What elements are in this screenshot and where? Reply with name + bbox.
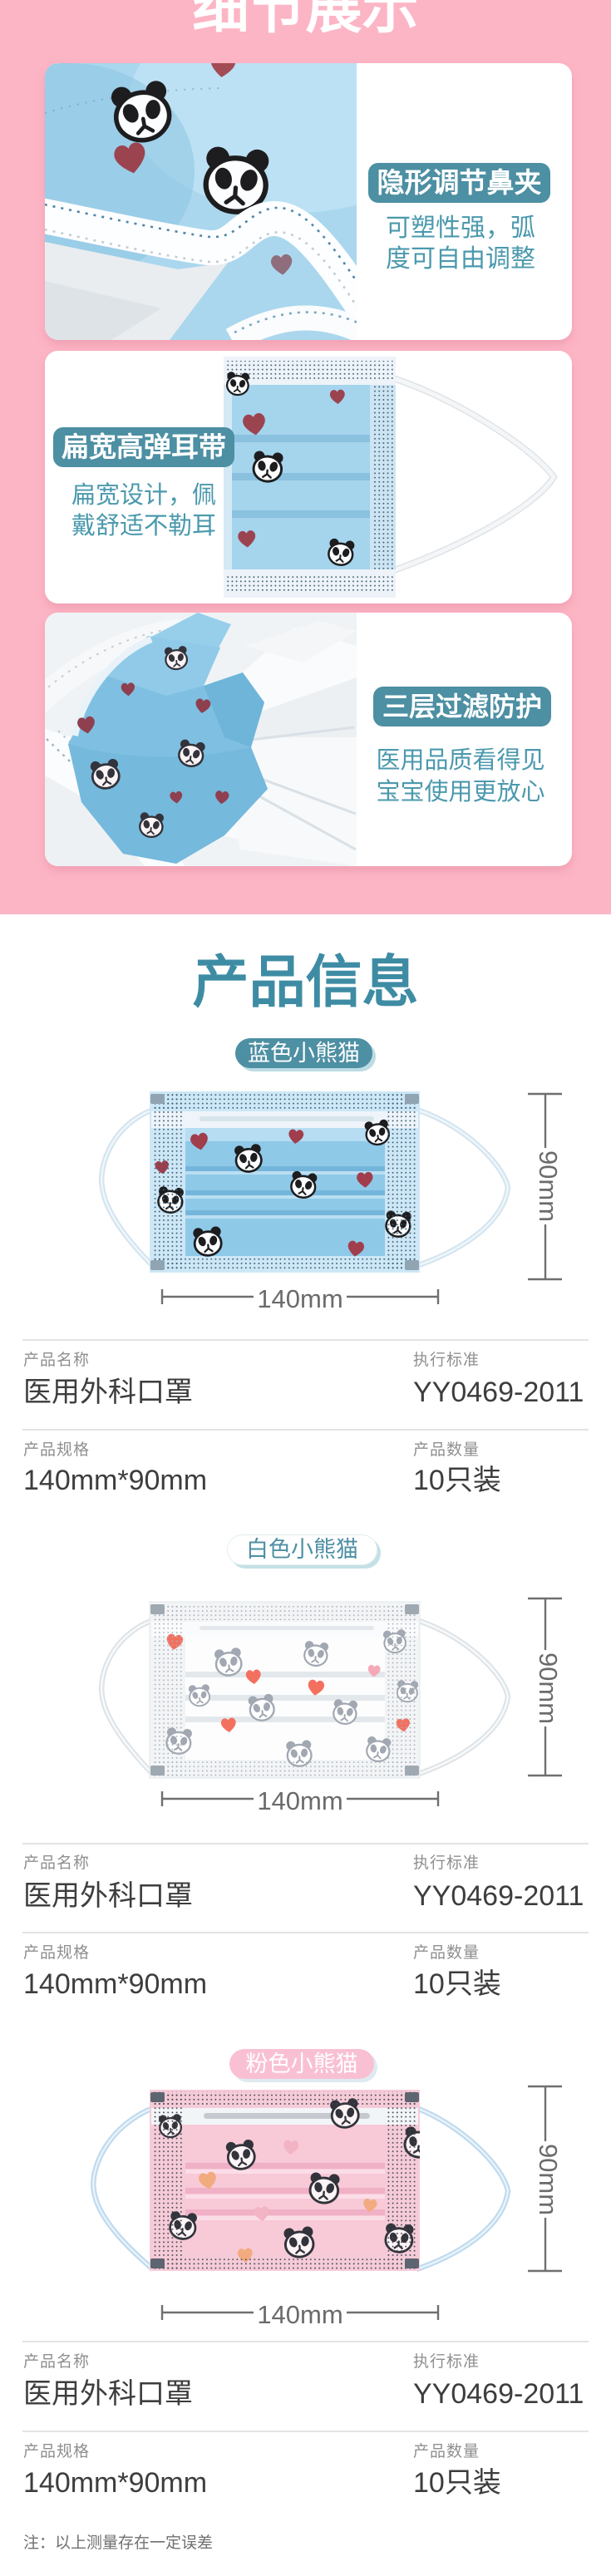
svg-text:90mm: 90mm [534, 1150, 563, 1222]
svg-text:90mm: 90mm [534, 1652, 563, 1724]
svg-text:140mm: 140mm [257, 2300, 342, 2329]
svg-text:140mm: 140mm [257, 1284, 342, 1313]
svg-text:90mm: 90mm [534, 2144, 563, 2215]
svg-text:140mm: 140mm [257, 1786, 342, 1815]
